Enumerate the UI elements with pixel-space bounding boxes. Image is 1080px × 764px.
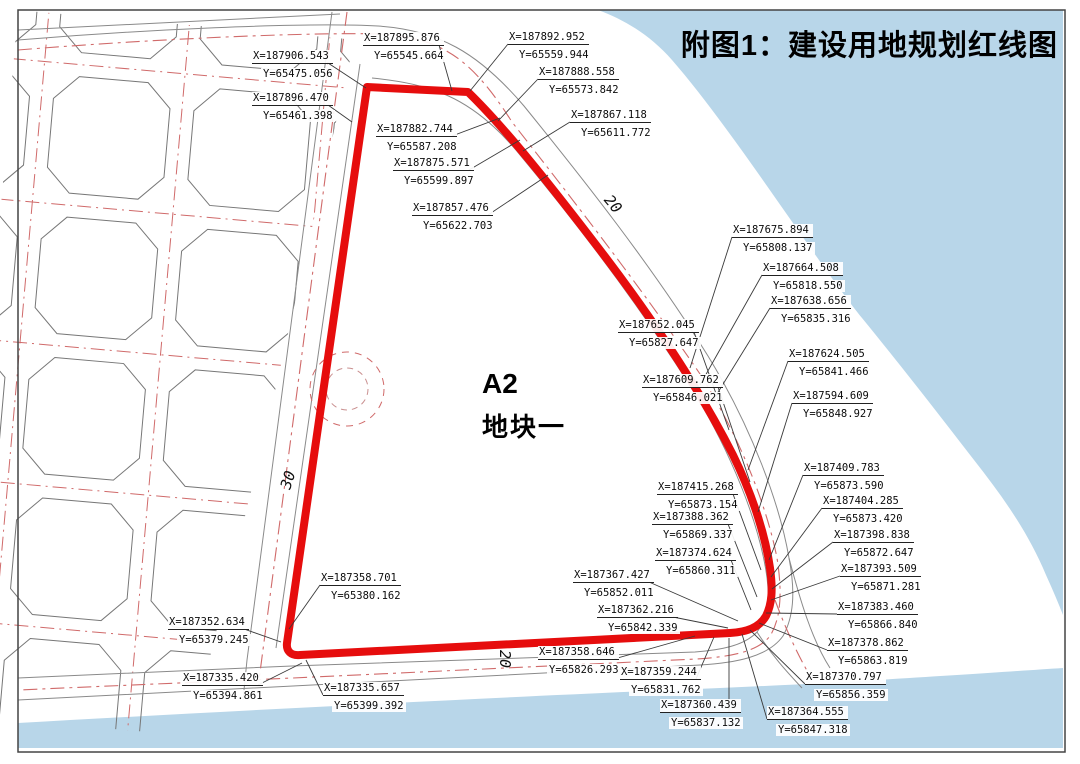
coord-label: X=187358.701Y=65380.162: [320, 572, 403, 602]
coord-y-value: Y=65873.590: [812, 480, 886, 492]
coord-y-value: Y=65837.132: [669, 717, 743, 729]
coord-y-value: Y=65841.466: [797, 366, 871, 378]
coord-label: X=187875.571Y=65599.897: [393, 157, 476, 187]
road-centerlines: [18, 12, 810, 690]
coord-x-value: X=187664.508: [762, 262, 843, 276]
coord-label: X=187370.797Y=65856.359: [805, 671, 888, 701]
coord-x-value: X=187393.509: [840, 563, 921, 577]
coord-y-value: Y=65399.392: [332, 700, 406, 712]
coord-y-value: Y=65872.647: [842, 547, 916, 559]
coord-label: X=187335.420Y=65394.861: [182, 672, 265, 702]
coord-x-value: X=187875.571: [393, 157, 474, 171]
coord-y-value: Y=65559.944: [517, 49, 591, 61]
coord-y-value: Y=65380.162: [329, 590, 403, 602]
coord-x-value: X=187896.470: [252, 92, 333, 106]
coord-x-value: X=187867.118: [570, 109, 651, 123]
coord-label: X=187409.783Y=65873.590: [803, 462, 886, 492]
coord-y-value: Y=65873.420: [831, 513, 905, 525]
coord-label: X=187335.657Y=65399.392: [323, 682, 406, 712]
coord-x-value: X=187374.624: [655, 547, 736, 561]
coord-y-value: Y=65587.208: [385, 141, 459, 153]
coord-label: X=187609.762Y=65846.021: [642, 374, 725, 404]
coord-label: X=187378.862Y=65863.819: [827, 637, 910, 667]
coord-label: X=187352.634Y=65379.245: [168, 616, 251, 646]
coord-y-value: Y=65461.398: [261, 110, 335, 122]
coord-y-value: Y=65831.762: [629, 684, 703, 696]
coord-label: X=187664.508Y=65818.550: [762, 262, 845, 292]
coord-y-value: Y=65863.819: [836, 655, 910, 667]
coord-x-value: X=187409.783: [803, 462, 884, 476]
plot-label: A2 地块一: [482, 368, 566, 444]
coord-y-value: Y=65818.550: [771, 280, 845, 292]
coord-x-value: X=187609.762: [642, 374, 723, 388]
road-lines: [18, 12, 830, 700]
coord-x-value: X=187383.460: [837, 601, 918, 615]
coord-x-value: X=187352.634: [168, 616, 249, 630]
coord-y-value: Y=65622.703: [421, 220, 495, 232]
coord-label: X=187360.439Y=65837.132: [660, 699, 743, 729]
coord-x-value: X=187335.420: [182, 672, 263, 686]
coord-y-value: Y=65475.056: [261, 68, 335, 80]
coord-y-value: Y=65847.318: [776, 724, 850, 736]
figure-title: 附图1：建设用地规划红线图: [681, 22, 1058, 64]
coord-y-value: Y=65873.154: [666, 499, 740, 511]
coord-label: X=187393.509Y=65871.281: [840, 563, 923, 593]
coord-y-value: Y=65545.664: [372, 50, 446, 62]
coord-x-value: X=187624.505: [788, 348, 869, 362]
coord-x-value: X=187360.439: [660, 699, 741, 713]
coord-x-value: X=187675.894: [732, 224, 813, 238]
coord-x-value: X=187358.701: [320, 572, 401, 586]
coord-label: X=187398.838Y=65872.647: [833, 529, 916, 559]
coord-x-value: X=187362.216: [597, 604, 678, 618]
coord-x-value: X=187367.427: [573, 569, 654, 583]
coord-label: X=187857.476Y=65622.703: [412, 202, 495, 232]
coord-y-value: Y=65852.011: [582, 587, 656, 599]
coord-x-value: X=187404.285: [822, 495, 903, 509]
coord-y-value: Y=65856.359: [814, 689, 888, 701]
coord-label: X=187415.268Y=65873.154: [657, 481, 740, 511]
coord-y-value: Y=65599.897: [402, 175, 476, 187]
coord-y-value: Y=65808.137: [741, 242, 815, 254]
coord-x-value: X=187370.797: [805, 671, 886, 685]
coord-label: X=187624.505Y=65841.466: [788, 348, 871, 378]
coord-y-value: Y=65611.772: [579, 127, 653, 139]
coord-x-value: X=187892.952: [508, 31, 589, 45]
coord-label: X=187896.470Y=65461.398: [252, 92, 335, 122]
coord-label: X=187383.460Y=65866.840: [837, 601, 920, 631]
coord-y-value: Y=65573.842: [547, 84, 621, 96]
coord-x-value: X=187378.862: [827, 637, 908, 651]
coord-x-value: X=187895.876: [363, 32, 444, 46]
coord-x-value: X=187888.558: [538, 66, 619, 80]
coord-x-value: X=187652.045: [618, 319, 699, 333]
coord-y-value: Y=65835.316: [779, 313, 853, 325]
coord-label: X=187882.744Y=65587.208: [376, 123, 459, 153]
water-area-bottom: [18, 668, 1063, 748]
coord-label: X=187892.952Y=65559.944: [508, 31, 591, 61]
coord-label: X=187374.624Y=65860.311: [655, 547, 738, 577]
coord-label: X=187906.543Y=65475.056: [252, 50, 335, 80]
coord-x-value: X=187415.268: [657, 481, 738, 495]
coord-y-value: Y=65871.281: [849, 581, 923, 593]
coord-label: X=187652.045Y=65827.647: [618, 319, 701, 349]
coord-y-value: Y=65869.337: [661, 529, 735, 541]
coord-label: X=187362.216Y=65842.339: [597, 604, 680, 634]
coord-x-value: X=187857.476: [412, 202, 493, 216]
coord-x-value: X=187398.838: [833, 529, 914, 543]
coord-y-value: Y=65826.293: [547, 664, 621, 676]
road-width-label: 20: [496, 650, 514, 668]
coord-label: X=187358.646Y=65826.293: [538, 646, 621, 676]
coord-label: X=187867.118Y=65611.772: [570, 109, 653, 139]
coord-y-value: Y=65848.927: [801, 408, 875, 420]
coord-label: X=187388.362Y=65869.337: [652, 511, 735, 541]
planning-map-canvas: 附图1：建设用地规划红线图 A2 地块一 X=187906.543Y=65475…: [0, 0, 1080, 764]
coord-label: X=187359.244Y=65831.762: [620, 666, 703, 696]
coord-x-value: X=187388.362: [652, 511, 733, 525]
coord-x-value: X=187906.543: [252, 50, 333, 64]
coord-label: X=187404.285Y=65873.420: [822, 495, 905, 525]
coord-x-value: X=187638.656: [770, 295, 851, 309]
coord-x-value: X=187364.555: [767, 706, 848, 720]
coord-y-value: Y=65379.245: [177, 634, 251, 646]
coord-label: X=187895.876Y=65545.664: [363, 32, 446, 62]
coord-y-value: Y=65394.861: [191, 690, 265, 702]
coord-label: X=187675.894Y=65808.137: [732, 224, 815, 254]
coord-label: X=187364.555Y=65847.318: [767, 706, 850, 736]
coord-x-value: X=187358.646: [538, 646, 619, 660]
plot-name: 地块一: [482, 407, 566, 444]
plot-code: A2: [482, 368, 566, 400]
coord-x-value: X=187882.744: [376, 123, 457, 137]
coord-y-value: Y=65846.021: [651, 392, 725, 404]
coord-label: X=187888.558Y=65573.842: [538, 66, 621, 96]
coord-label: X=187367.427Y=65852.011: [573, 569, 656, 599]
coord-y-value: Y=65860.311: [664, 565, 738, 577]
coord-label: X=187638.656Y=65835.316: [770, 295, 853, 325]
coord-y-value: Y=65842.339: [606, 622, 680, 634]
coord-x-value: X=187335.657: [323, 682, 404, 696]
coord-x-value: X=187359.244: [620, 666, 701, 680]
coord-x-value: X=187594.609: [792, 390, 873, 404]
coord-y-value: Y=65866.840: [846, 619, 920, 631]
coord-label: X=187594.609Y=65848.927: [792, 390, 875, 420]
coord-y-value: Y=65827.647: [627, 337, 701, 349]
